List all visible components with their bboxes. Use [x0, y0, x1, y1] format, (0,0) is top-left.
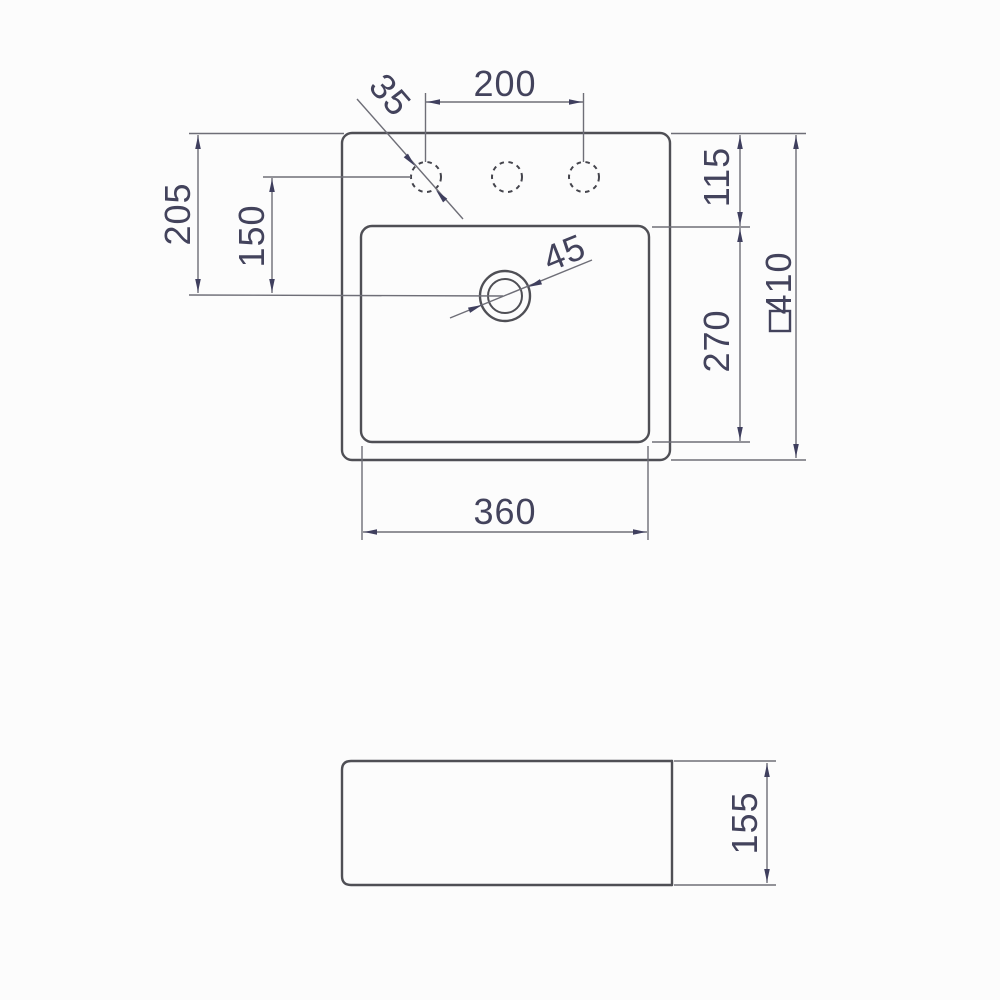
faucet-hole-center	[492, 162, 522, 192]
dim-label-205: 205	[157, 182, 198, 245]
arrow-right-icon	[633, 529, 646, 535]
dim-label-200: 200	[473, 63, 536, 104]
arrow-left-icon	[364, 529, 377, 535]
dim-rim-to-basin: 115	[652, 134, 806, 228]
dim-label-45: 45	[537, 226, 591, 280]
basin-drawing-svg: 200 35 205 150	[0, 0, 1000, 1000]
dim-label-115: 115	[696, 147, 737, 207]
dim-overall-height: 155	[674, 761, 776, 885]
dim-label-360: 360	[473, 491, 536, 532]
dim-label-410: 410	[758, 251, 799, 314]
side-body-outline	[342, 761, 672, 885]
arrow-to-hole-lower-icon	[434, 188, 447, 202]
arrow-up-icon	[195, 136, 201, 149]
faucet-hole-right	[569, 162, 599, 192]
arrow-down-icon	[737, 212, 743, 225]
dim-label-155: 155	[724, 791, 765, 854]
dim-basin-depth: 270	[652, 228, 750, 442]
arrow-up-icon	[737, 136, 743, 149]
dim-hole-diameter: 35	[357, 65, 463, 219]
arrow-right-icon	[569, 99, 582, 105]
dim-label-35: 35	[361, 65, 420, 124]
arrow-down-icon	[269, 279, 275, 292]
basin-outline	[361, 226, 649, 442]
arrow-down-icon	[764, 869, 770, 882]
technical-drawing-canvas: 200 35 205 150	[0, 0, 1000, 1000]
dim-overall-square: 410	[671, 135, 806, 460]
dim-label-270: 270	[696, 309, 737, 372]
arrow-down-icon	[737, 427, 743, 440]
dim-rim-to-drain: 205	[157, 134, 503, 297]
arrow-up-icon	[793, 136, 799, 149]
dim-label-150: 150	[231, 204, 272, 267]
arrow-up-icon	[737, 229, 743, 242]
side-view: 155	[342, 761, 776, 885]
arrow-up-icon	[764, 764, 770, 777]
dim-hole-to-drain: 150	[231, 177, 411, 293]
arrow-down-icon	[793, 444, 799, 457]
top-view: 200 35 205 150	[157, 63, 806, 540]
sink-outer-outline	[342, 133, 670, 460]
dim-hole-spacing: 200	[426, 63, 584, 162]
arrow-left-icon	[427, 99, 440, 105]
arrow-down-icon	[195, 279, 201, 292]
arrow-up-icon	[269, 179, 275, 192]
